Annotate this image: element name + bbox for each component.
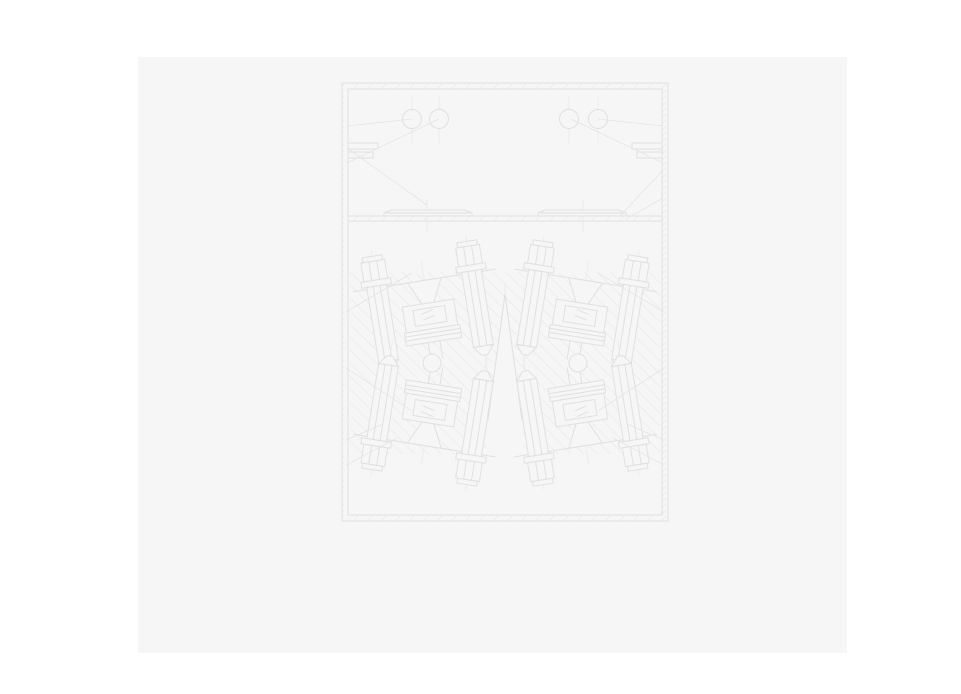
hopper-section bbox=[348, 97, 662, 158]
bore-hole-circle bbox=[560, 110, 579, 129]
slide-rail-section bbox=[348, 199, 662, 233]
screenshot-viewport bbox=[0, 0, 961, 694]
slide-plate-right bbox=[538, 199, 626, 233]
slide-plate-left bbox=[384, 199, 472, 233]
technical-drawing bbox=[0, 0, 961, 694]
body-section bbox=[347, 232, 662, 495]
pivot-circle-right bbox=[569, 354, 587, 372]
pivot-circle-left bbox=[423, 354, 441, 372]
rail-band bbox=[348, 216, 662, 221]
